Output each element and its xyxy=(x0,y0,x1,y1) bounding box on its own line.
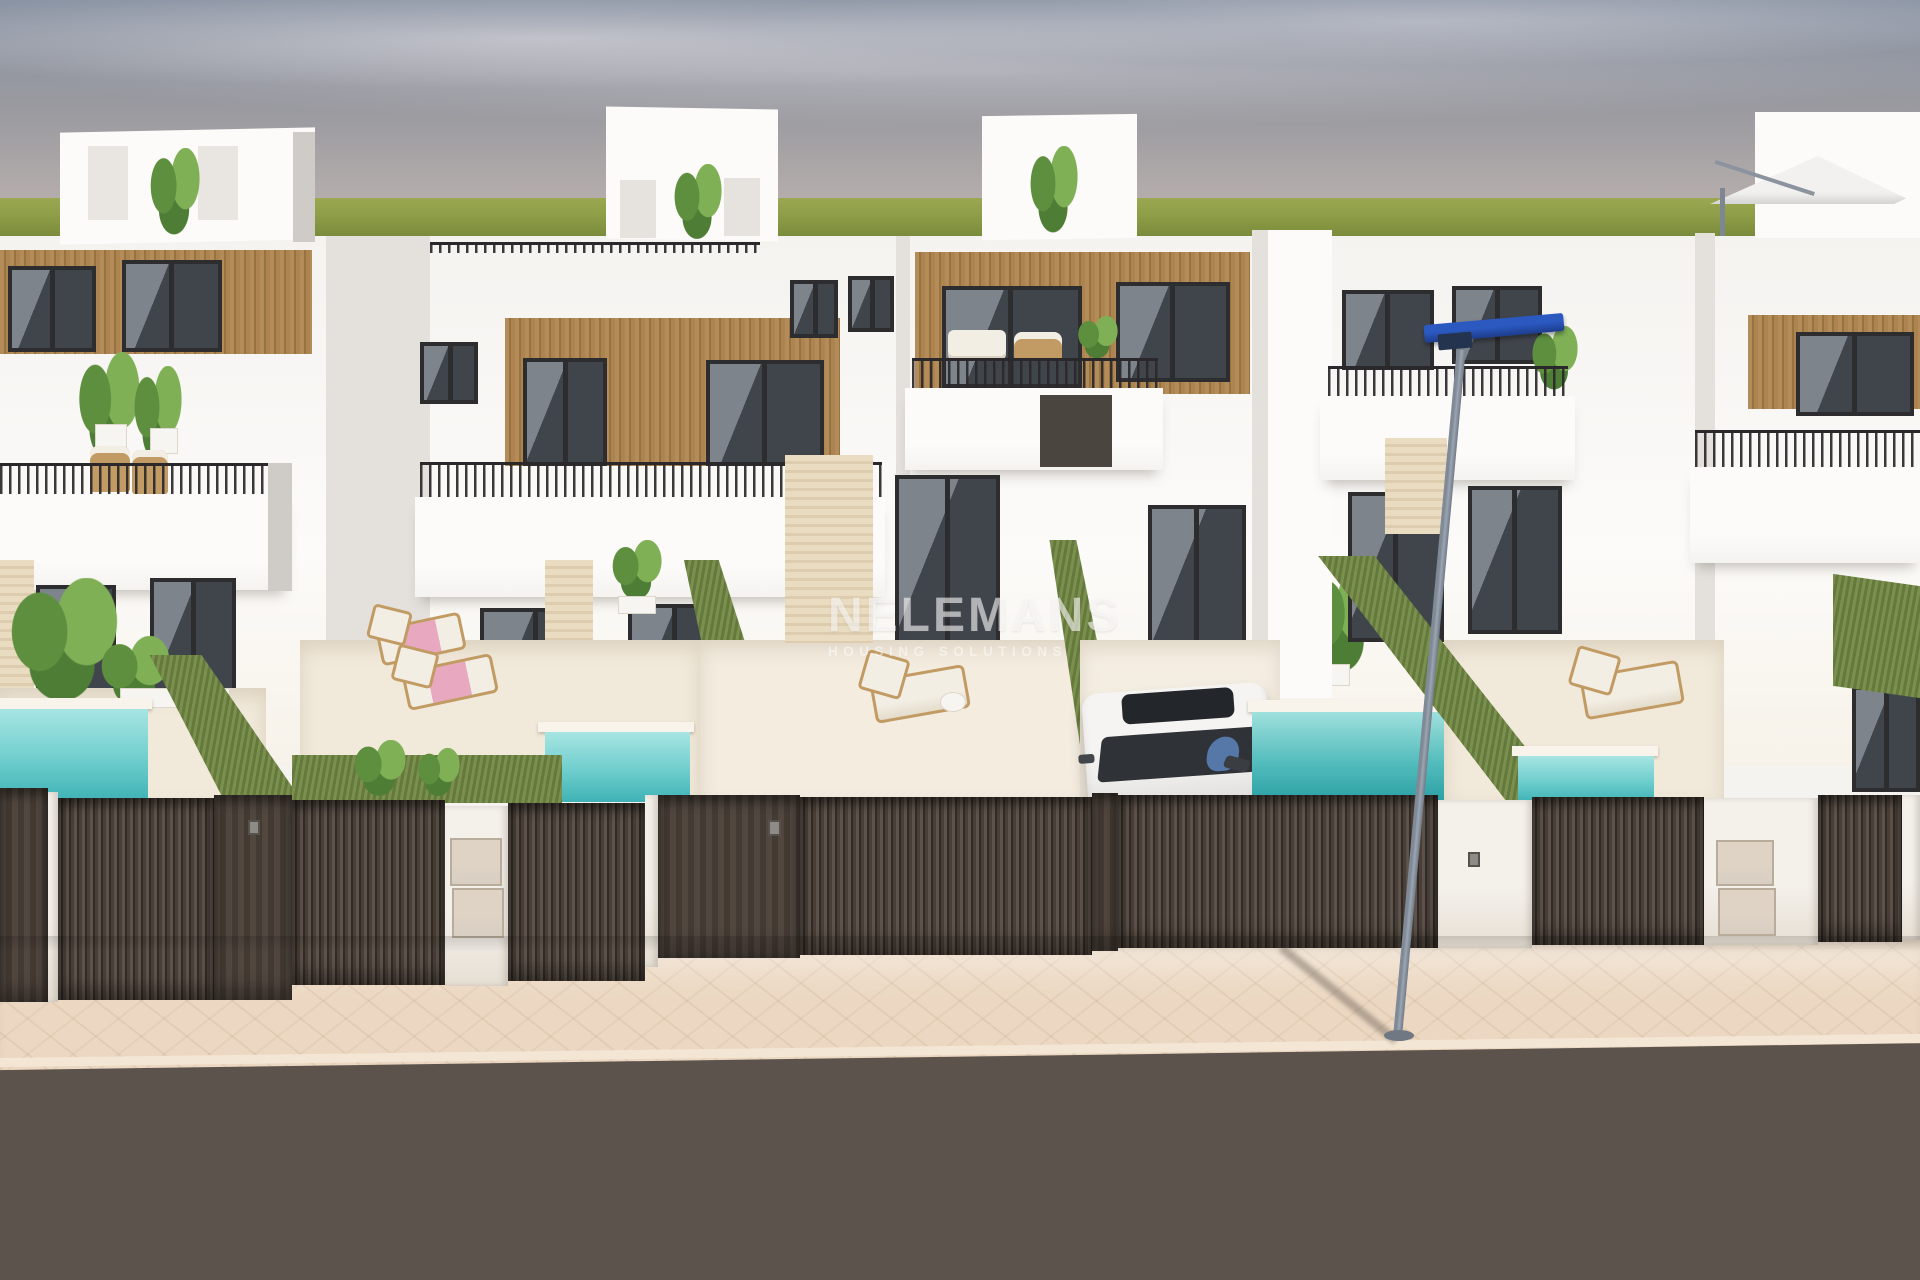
house4-upper-window xyxy=(1342,290,1434,370)
stairwell-window xyxy=(848,276,894,332)
house2-upper-window xyxy=(706,360,824,466)
house2-stair-window xyxy=(420,342,478,404)
utility-box[interactable] xyxy=(450,838,502,886)
fence-dark-panel xyxy=(0,788,48,1002)
fence-ground-shadow xyxy=(0,936,1920,952)
house3-balcony-railing xyxy=(912,358,1158,390)
house1-balcony-railing xyxy=(0,463,290,497)
fence-plants xyxy=(416,748,460,798)
fence-dark-post xyxy=(1092,793,1118,951)
gate-keypad[interactable] xyxy=(768,820,781,836)
street-lamp-base xyxy=(1384,1030,1414,1041)
architectural-render-scene: NELEMANS HOUSING SOLUTIONS xyxy=(0,0,1920,1280)
pool1-coping xyxy=(0,698,152,709)
utility-box[interactable] xyxy=(452,888,504,938)
house5-balcony-railing xyxy=(1695,430,1920,470)
house3-entry-recess xyxy=(1040,395,1112,467)
gate-keypad[interactable] xyxy=(1468,852,1480,867)
house3-terrace-sofa xyxy=(948,330,1006,360)
house5-ground-window xyxy=(1852,686,1920,792)
fence-plants xyxy=(352,740,406,798)
pool3-coping xyxy=(1248,700,1448,712)
street-fence xyxy=(1532,797,1704,945)
utility-box[interactable] xyxy=(1718,888,1776,936)
driveway-gate-left[interactable] xyxy=(58,798,214,1000)
house1-balcony-parapet xyxy=(0,494,290,590)
house2-terrace-plant xyxy=(610,540,662,602)
house5-balcony-parapet xyxy=(1690,467,1920,563)
house5-upper-window xyxy=(1796,332,1914,416)
roof-parasol-pole xyxy=(1720,188,1725,236)
house1-roof-door xyxy=(198,146,238,220)
house2-upper-window xyxy=(523,358,607,466)
pool4 xyxy=(1518,756,1654,802)
house2-terrace-planter xyxy=(618,596,656,614)
watermark-subtitle: HOUSING SOLUTIONS xyxy=(828,644,1248,659)
house1-balcony-sideface xyxy=(268,463,292,591)
house4-edge-shadowface xyxy=(1252,230,1268,700)
developer-watermark: NELEMANS HOUSING SOLUTIONS xyxy=(828,592,1248,659)
house4-ground-glassdoor xyxy=(1468,486,1562,634)
house2-roof-door xyxy=(724,178,760,236)
house4-balcony-railing xyxy=(1328,366,1568,398)
house2-roof-railing xyxy=(430,242,760,253)
house2-roof-plant xyxy=(672,164,722,242)
house5-hedge xyxy=(1833,574,1920,698)
house3-terrace-plant xyxy=(1076,316,1118,360)
street-fence xyxy=(1818,795,1902,942)
gate-keypad[interactable] xyxy=(248,820,260,835)
street-fence xyxy=(508,803,645,981)
fence-white-post xyxy=(1902,795,1920,940)
utility-box[interactable] xyxy=(1716,840,1774,886)
pool2-coping xyxy=(538,722,694,732)
house4-travertine-pillar xyxy=(1385,438,1447,534)
pool2 xyxy=(545,732,690,802)
house3-terrace-chair xyxy=(1014,332,1062,360)
watermark-title: NELEMANS xyxy=(828,592,1248,640)
house2-roof-door xyxy=(620,180,656,238)
pool4-coping xyxy=(1512,746,1658,756)
street-fence xyxy=(292,800,445,985)
fence-white-post xyxy=(48,792,58,1002)
house1-roofbox-sideface xyxy=(293,132,315,242)
street-fence xyxy=(1118,795,1438,948)
center-driveway-gate[interactable] xyxy=(800,797,1092,955)
house2-side-volume xyxy=(326,236,430,662)
house3-balcony-parapet xyxy=(905,388,1163,470)
house1-upper-window xyxy=(8,266,96,352)
street-lamp-bracket xyxy=(1437,332,1472,351)
car-mirror xyxy=(1078,754,1095,764)
house3-roof-plant xyxy=(1028,146,1078,236)
center-side-table xyxy=(940,692,966,712)
stairwell-window xyxy=(790,280,838,338)
house1-roof-plant xyxy=(148,148,200,238)
house1-roof-door xyxy=(88,146,128,220)
house1-upper-window xyxy=(122,260,222,352)
fence-white-wall xyxy=(1438,800,1532,948)
